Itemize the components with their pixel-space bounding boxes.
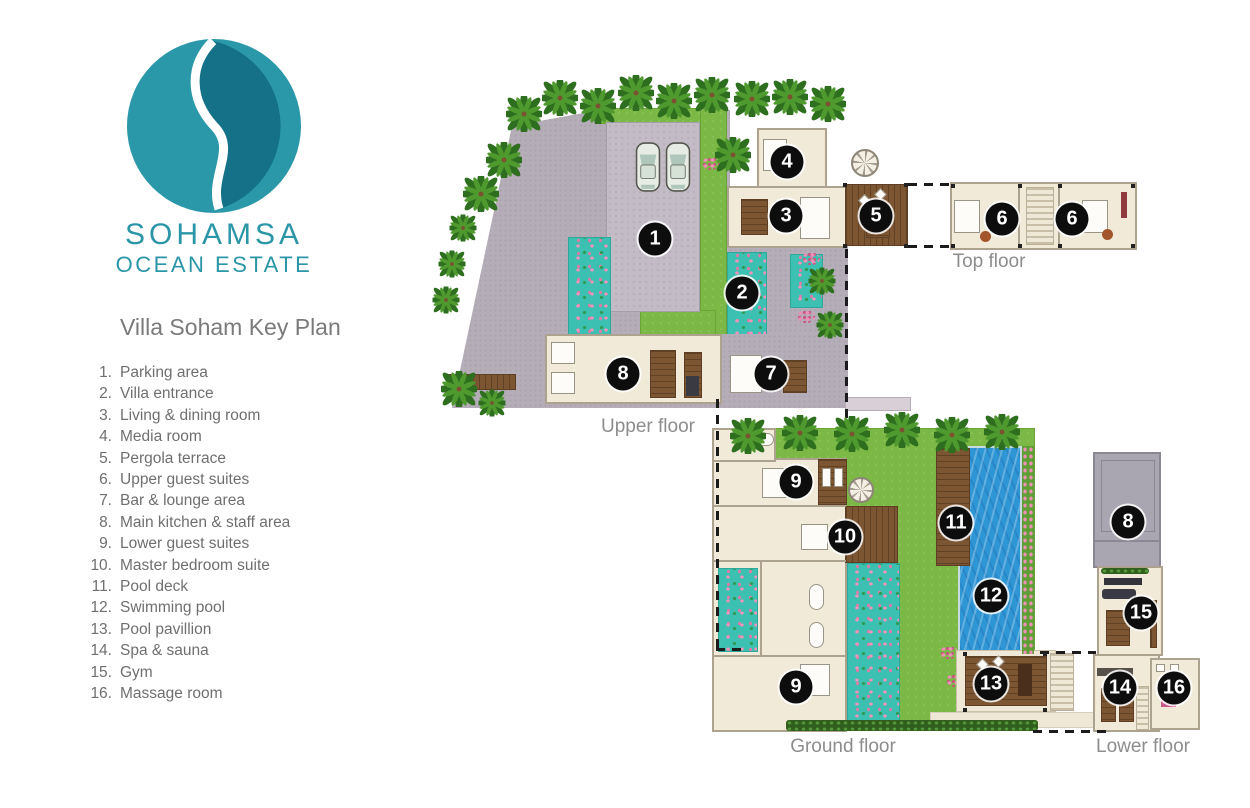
guest-bed [954, 200, 980, 233]
lounger [822, 468, 831, 487]
sohamsa-logo-icon [126, 38, 302, 214]
bar-terrace [845, 397, 911, 411]
connector-ground-lower-upper [1040, 651, 1096, 654]
marker-ground-9: 9 [780, 466, 813, 499]
boundary-hedge [786, 720, 1038, 731]
marker-lower-16: 16 [1158, 672, 1191, 705]
marker-ground-10: 10 [829, 521, 862, 554]
palm-tree-icon [542, 80, 578, 116]
gym-barbell [1104, 578, 1142, 585]
palm-tree-icon [479, 390, 506, 417]
legend-item-number: 5. [72, 448, 120, 469]
gym-treadmill [1102, 589, 1136, 599]
column-dots [0, 0, 4, 4]
palm-tree-icon [580, 88, 616, 124]
legend-item-number: 1. [72, 362, 120, 383]
palm-tree-icon [834, 416, 870, 452]
legend-item-1: 1.Parking area [72, 362, 290, 383]
villa-key-plan-page: { "brand": { "line1": "SOHAMSA", "line2"… [0, 0, 1250, 808]
legend-item-label: Swimming pool [120, 597, 225, 618]
legend-item-5: 5.Pergola terrace [72, 448, 290, 469]
palm-tree-icon [772, 79, 808, 115]
brand-name: SOHAMSA [104, 218, 324, 252]
kitchen-appliance [686, 376, 699, 396]
palm-tree-icon [809, 268, 836, 295]
lower-floor-label: Lower floor [1083, 736, 1203, 758]
connector-upper-ground-left [716, 399, 719, 650]
marker-upper-7: 7 [755, 358, 788, 391]
legend-item-number: 8. [72, 512, 120, 533]
bathtub [809, 584, 824, 610]
lounger [834, 468, 843, 487]
legend-item-13: 13.Pool pavillion [72, 619, 290, 640]
palm-tree-icon [439, 251, 466, 278]
brand-subtitle: OCEAN ESTATE [104, 252, 324, 278]
legend-item-label: Media room [120, 426, 202, 447]
inner-wall [713, 655, 846, 657]
gym-planter [1101, 568, 1149, 574]
legend-item-7: 7.Bar & lounge area [72, 490, 290, 511]
marker-top-6: 6 [1056, 203, 1089, 236]
legend-item-11: 11.Pool deck [72, 576, 290, 597]
palm-tree-icon [817, 312, 844, 339]
palm-tree-icon [734, 81, 770, 117]
marker-lower-8: 8 [1112, 506, 1145, 539]
palm-tree-icon [810, 86, 846, 122]
inner-wall [713, 505, 846, 507]
marker-upper-8: 8 [607, 358, 640, 391]
palm-tree-icon [618, 75, 654, 111]
palm-tree-icon [450, 215, 477, 242]
legend-item-label: Pergola terrace [120, 448, 226, 469]
marker-upper-5: 5 [860, 200, 893, 233]
palm-tree-icon [656, 83, 692, 119]
palm-tree-icon [715, 137, 751, 173]
marker-upper-3: 3 [770, 200, 803, 233]
legend-item-number: 9. [72, 533, 120, 554]
legend-item-label: Gym [120, 662, 153, 683]
pool-flower-border [1022, 446, 1034, 654]
legend-item-label: Spa & sauna [120, 640, 209, 661]
lower-stairs [1136, 686, 1149, 730]
car-icon [665, 142, 691, 192]
ground-floor-label: Ground floor [773, 736, 913, 758]
legend-item-label: Parking area [120, 362, 208, 383]
wardrobe [1121, 192, 1127, 218]
staff-bed [551, 342, 575, 364]
legend-item-number: 3. [72, 405, 120, 426]
connector-upper-ground-left-foot [716, 648, 746, 651]
legend-item-3: 3.Living & dining room [72, 405, 290, 426]
legend-item-label: Bar & lounge area [120, 490, 245, 511]
legend-item-number: 12. [72, 597, 120, 618]
legend-item-number: 16. [72, 683, 120, 704]
bathtub [809, 622, 824, 648]
palm-tree-icon [730, 418, 766, 454]
palm-tree-icon [782, 415, 818, 451]
legend-item-10: 10.Master bedroom suite [72, 555, 290, 576]
dining-table [741, 199, 768, 235]
legend-item-label: Lower guest suites [120, 533, 249, 554]
legend-item-label: Massage room [120, 683, 223, 704]
staff-bed [551, 372, 575, 394]
legend-item-number: 6. [72, 469, 120, 490]
massage-fixture [1156, 664, 1165, 672]
living-sofa [800, 197, 830, 239]
legend-item-number: 4. [72, 426, 120, 447]
connector-ground-lower-bottom [1033, 730, 1111, 733]
marker-ground-9: 9 [780, 671, 813, 704]
roof-ridge [1093, 540, 1161, 542]
legend-item-label: Master bedroom suite [120, 555, 270, 576]
marker-lower-15: 15 [1125, 597, 1158, 630]
key-plan-legend: 1.Parking area2.Villa entrance3.Living &… [72, 362, 290, 705]
palm-tree-icon [694, 77, 730, 113]
top-floor-label: Top floor [929, 251, 1049, 273]
marker-lower-14: 14 [1104, 672, 1137, 705]
palm-tree-icon [884, 412, 920, 448]
legend-item-number: 2. [72, 383, 120, 404]
palm-tree-icon [486, 142, 522, 178]
legend-item-label: Pool deck [120, 576, 188, 597]
spiral-stair-icon [848, 477, 874, 503]
garden-band [847, 563, 900, 730]
legend-item-4: 4.Media room [72, 426, 290, 447]
marker-upper-4: 4 [771, 146, 804, 179]
marker-ground-13: 13 [975, 668, 1008, 701]
legend-item-label: Living & dining room [120, 405, 260, 426]
marker-upper-2: 2 [726, 277, 759, 310]
marker-upper-1: 1 [639, 223, 672, 256]
flower-cluster [797, 310, 815, 323]
connector-pergola-topfloor-bottom [908, 245, 954, 248]
legend-item-number: 13. [72, 619, 120, 640]
legend-item-9: 9.Lower guest suites [72, 533, 290, 554]
pavilion-steps [1050, 653, 1074, 711]
spiral-stair-icon [851, 149, 879, 177]
marker-ground-12: 12 [975, 580, 1008, 613]
legend-item-12: 12.Swimming pool [72, 597, 290, 618]
driveway-garden [568, 237, 611, 337]
car-icon [635, 142, 661, 192]
legend-item-number: 7. [72, 490, 120, 511]
legend-item-15: 15.Gym [72, 662, 290, 683]
legend-item-6: 6.Upper guest suites [72, 469, 290, 490]
palm-tree-icon [506, 96, 542, 132]
courtyard-garden [718, 568, 758, 652]
legend-item-label: Upper guest suites [120, 469, 249, 490]
connector-pergola-topfloor-top [908, 183, 952, 186]
inner-wall [713, 560, 846, 562]
legend-item-number: 15. [72, 662, 120, 683]
legend-item-2: 2.Villa entrance [72, 383, 290, 404]
marker-top-6: 6 [986, 203, 1019, 236]
pavilion-bar [1018, 664, 1032, 696]
legend-item-label: Villa entrance [120, 383, 214, 404]
upper-floor-label: Upper floor [588, 416, 708, 438]
side-table [1102, 229, 1113, 240]
master-bed [801, 524, 828, 550]
marker-ground-11: 11 [940, 507, 973, 540]
flower-cluster [802, 252, 820, 265]
page-title: Villa Soham Key Plan [120, 314, 341, 341]
legend-item-8: 8.Main kitchen & staff area [72, 512, 290, 533]
side-table [980, 231, 991, 242]
palm-tree-icon [441, 371, 477, 407]
legend-item-label: Main kitchen & staff area [120, 512, 290, 533]
palm-tree-icon [463, 176, 499, 212]
inner-wall [760, 560, 762, 655]
connector-upper-ground-right [845, 249, 848, 431]
top-floor-stairs [1026, 187, 1054, 245]
palm-tree-icon [934, 417, 970, 453]
legend-item-16: 16.Massage room [72, 683, 290, 704]
legend-item-number: 10. [72, 555, 120, 576]
legend-item-number: 14. [72, 640, 120, 661]
legend-item-number: 11. [72, 576, 120, 597]
legend-item-14: 14.Spa & sauna [72, 640, 290, 661]
palm-tree-icon [984, 414, 1020, 450]
legend-item-label: Pool pavillion [120, 619, 211, 640]
palm-tree-icon [433, 287, 460, 314]
kitchen-cabinet [650, 350, 676, 398]
